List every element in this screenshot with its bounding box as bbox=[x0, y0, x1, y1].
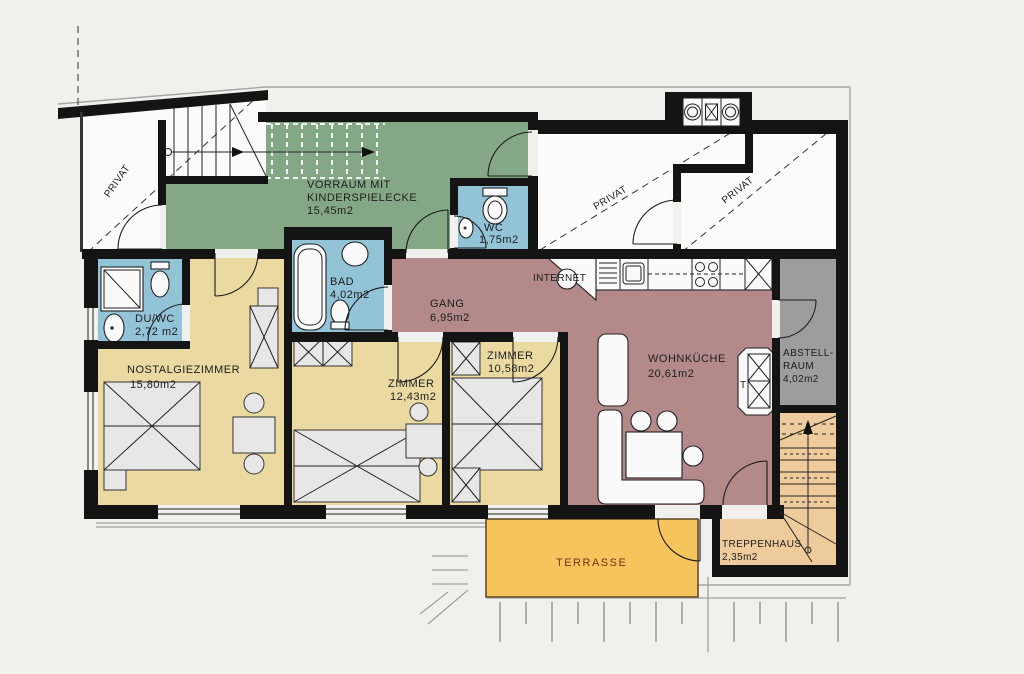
bathtub-icon bbox=[294, 244, 326, 330]
label-gang-area: 6,95m2 bbox=[430, 312, 470, 324]
sideboard bbox=[598, 334, 628, 406]
label-wc: WC bbox=[484, 222, 503, 234]
washbasin-icon bbox=[104, 314, 124, 342]
label-du-wc-area: 2,72 m2 bbox=[135, 326, 178, 338]
double-bed-symbol bbox=[452, 378, 542, 470]
label-wohnkueche-area: 20,61m2 bbox=[648, 368, 694, 380]
label-zimmer-small: ZIMMER bbox=[487, 350, 533, 362]
window bbox=[88, 308, 93, 340]
double-bed-symbol bbox=[104, 382, 200, 470]
chair bbox=[419, 458, 437, 476]
label-internet: INTERNET bbox=[533, 273, 586, 284]
label-bad-area: 4,02m2 bbox=[330, 289, 370, 301]
chair bbox=[657, 411, 677, 431]
label-zimmer-small-area: 10,58m2 bbox=[488, 363, 534, 375]
label-nostalgiezimmer: NOSTALGIEZIMMER bbox=[127, 364, 240, 376]
label-treppenhaus-area: 2,35m2 bbox=[722, 552, 758, 563]
label-gang: GANG bbox=[430, 298, 464, 310]
window bbox=[326, 509, 406, 514]
label-abstellraum: ABSTELL- bbox=[783, 348, 833, 359]
chair bbox=[631, 411, 651, 431]
floorplan-canvas: VORRAUM MIT KINDERSPIELECKE 15,45m2 WC 1… bbox=[0, 0, 1024, 674]
label-vorraum-area: 15,45m2 bbox=[307, 205, 353, 217]
label-wohnkueche: WOHNKÜCHE bbox=[648, 353, 726, 365]
nightstand bbox=[104, 470, 126, 490]
washbasin-icon bbox=[342, 242, 368, 266]
toilet-icon bbox=[331, 300, 349, 329]
ground-hatching bbox=[486, 598, 846, 642]
chair bbox=[244, 393, 264, 413]
label-du-wc: DU/WC bbox=[135, 313, 175, 325]
chair bbox=[244, 454, 264, 474]
double-bed-symbol bbox=[294, 430, 420, 502]
table bbox=[233, 417, 275, 453]
floorplan-page: VORRAUM MIT KINDERSPIELECKE 15,45m2 WC 1… bbox=[0, 0, 1024, 674]
label-wc-area: 1,75m2 bbox=[479, 234, 519, 246]
label-zimmer-mid-area: 12,43m2 bbox=[390, 391, 436, 403]
toilet-icon bbox=[151, 262, 169, 297]
dining-table bbox=[626, 432, 682, 478]
label-vorraum: VORRAUM MIT bbox=[307, 179, 391, 191]
chair bbox=[410, 403, 428, 421]
label-vorraum-2: KINDERSPIELECKE bbox=[307, 192, 417, 204]
window bbox=[488, 509, 548, 514]
label-zimmer-mid: ZIMMER bbox=[388, 378, 434, 390]
wardrobe-icon bbox=[294, 338, 352, 366]
label-terrasse: TERRASSE bbox=[556, 557, 627, 569]
label-bad: BAD bbox=[330, 276, 354, 288]
window bbox=[158, 509, 240, 514]
label-treppenhaus: TREPPENHAUS bbox=[722, 539, 801, 550]
table bbox=[406, 424, 444, 458]
chair bbox=[683, 446, 703, 466]
wardrobe-icon bbox=[452, 342, 480, 375]
label-nostalgiezimmer-area: 15,80m2 bbox=[130, 379, 176, 391]
wardrobe-icon bbox=[452, 468, 480, 502]
label-stove-t: T bbox=[740, 380, 747, 391]
chimney-vent-icon bbox=[683, 98, 740, 126]
toilet-icon bbox=[483, 188, 507, 224]
window bbox=[88, 392, 93, 470]
label-abstellraum-2: RAUM bbox=[783, 361, 814, 372]
label-abstellraum-area: 4,02m2 bbox=[783, 374, 819, 385]
shower-icon bbox=[101, 267, 143, 311]
